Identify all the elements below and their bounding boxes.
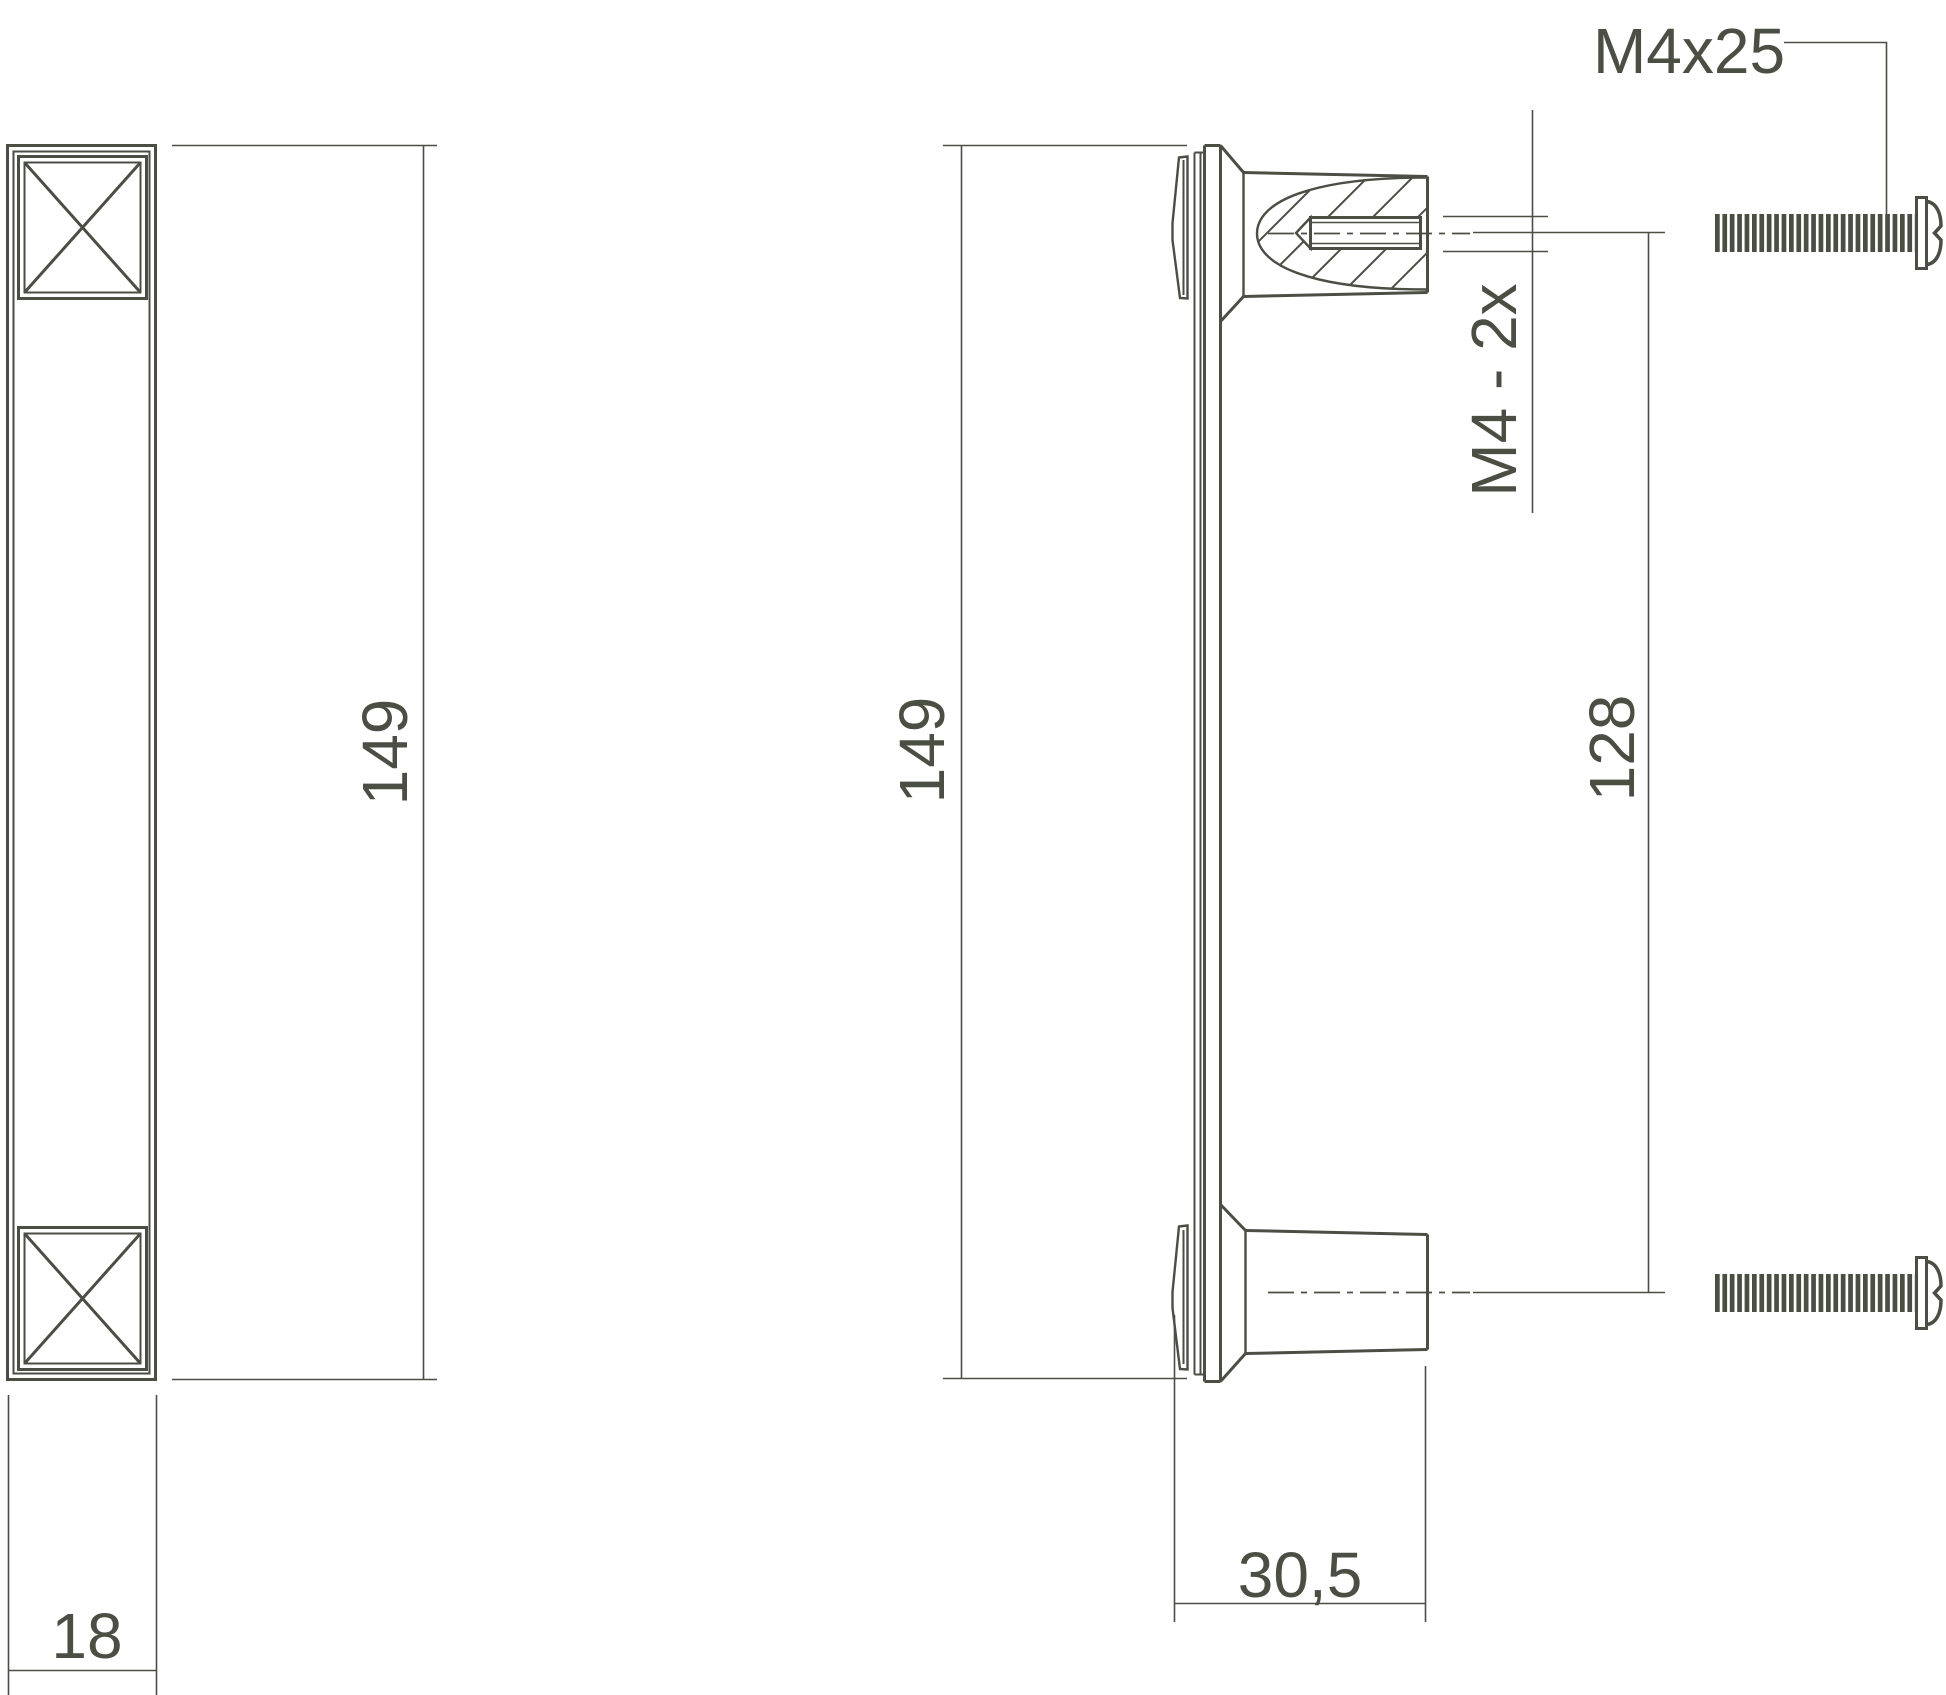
bottom-mount-marker	[19, 1228, 147, 1370]
handle-inner-outline	[14, 152, 150, 1374]
dimension-front-width: 18	[9, 1395, 157, 1695]
leader-line	[1784, 43, 1887, 215]
hole-spacing-label: 128	[1576, 695, 1648, 802]
screw-spec-label: M4x25	[1593, 15, 1785, 87]
bottom-post	[1221, 1205, 1471, 1382]
handle-outer-outline	[8, 146, 156, 1380]
post-top-edge	[1246, 1231, 1428, 1235]
front-height-label: 149	[349, 699, 421, 806]
thread-spec-label: M4 - 2x	[1458, 283, 1530, 496]
dimension-post-depth: 30,5	[1175, 1315, 1426, 1622]
side-height-label: 149	[886, 697, 958, 804]
bottom-screw	[1715, 1258, 1941, 1329]
post-lower-slant	[1221, 1354, 1246, 1382]
post-bottom-edge	[1246, 1350, 1428, 1354]
technical-drawing: 149 18	[0, 0, 1946, 1695]
dimension-side-height: 149	[886, 146, 1187, 1379]
handle-end-caps	[1173, 157, 1188, 1370]
drawing-canvas: 149 18	[0, 0, 1946, 1695]
post-top-edge	[1244, 173, 1428, 177]
top-cap-outline	[1173, 157, 1188, 299]
screw-callout: M4x25	[1593, 15, 1887, 214]
post-upper-slant	[1221, 1205, 1246, 1231]
handle-bar	[1195, 146, 1221, 1382]
post-lower-slant	[1221, 297, 1244, 322]
dimension-thread-spec: M4 - 2x	[1443, 110, 1548, 513]
post-bottom-edge	[1244, 293, 1428, 297]
post-depth-label: 30,5	[1238, 1539, 1363, 1611]
post-upper-slant	[1221, 146, 1244, 173]
front-view	[8, 146, 156, 1380]
dimension-front-height: 149	[172, 146, 437, 1380]
front-width-label: 18	[51, 1600, 122, 1672]
fixing-screws	[1715, 198, 1941, 1329]
top-mount-marker	[19, 157, 147, 299]
top-screw	[1715, 198, 1941, 269]
